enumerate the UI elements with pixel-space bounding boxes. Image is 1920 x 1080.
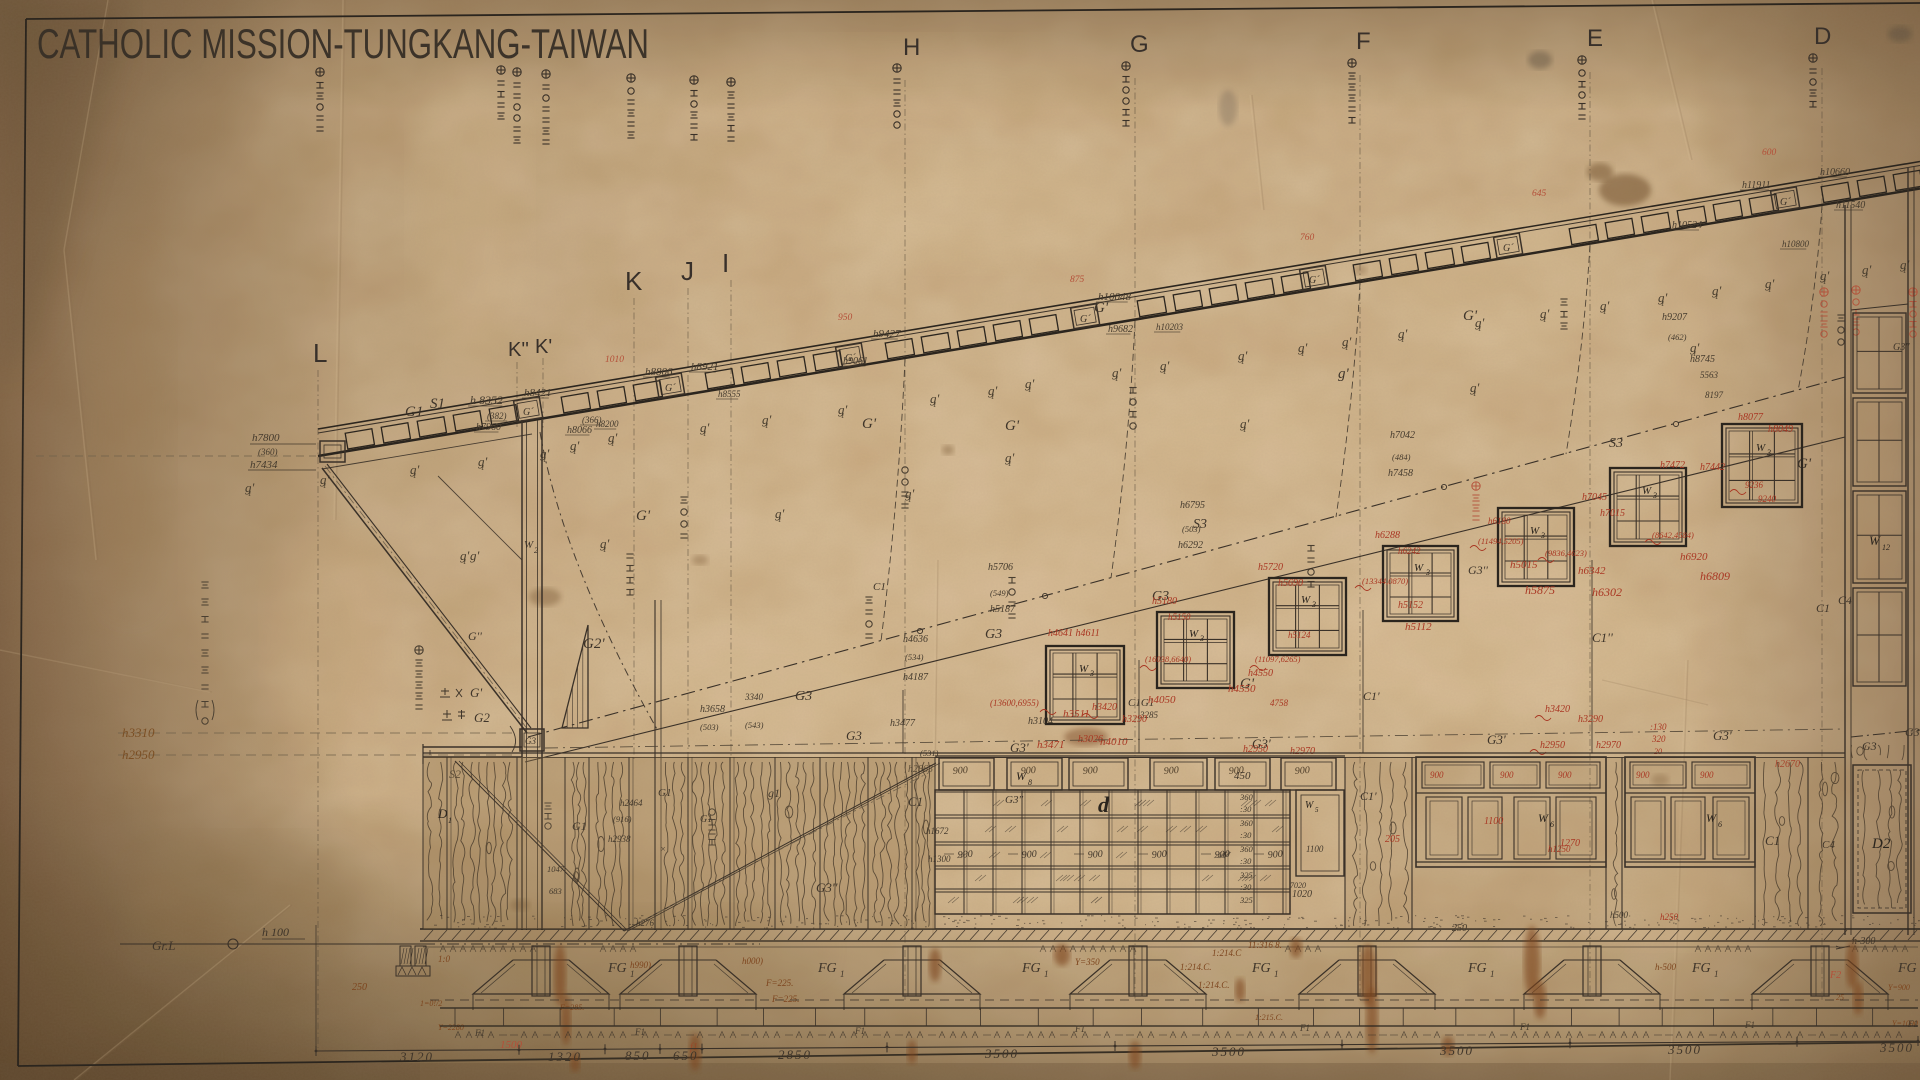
svg-text:3500: 3500 — [1879, 1040, 1914, 1055]
svg-text:1320: 1320 — [548, 1049, 582, 1064]
svg-text:325: 325 — [1239, 870, 1253, 880]
svg-text:K'': K'' — [508, 339, 529, 361]
svg-text:(543): (543) — [745, 720, 764, 730]
svg-text:F2: F2 — [1829, 970, 1841, 981]
svg-text:1: 1 — [1715, 293, 1719, 301]
svg-text:1: 1 — [1241, 358, 1245, 366]
svg-text:4758: 4758 — [1270, 698, 1289, 708]
svg-text:h5690: h5690 — [1278, 578, 1303, 589]
svg-text:K': K' — [535, 336, 552, 358]
svg-text:G3: G3 — [525, 736, 536, 746]
svg-text:FG: FG — [1021, 961, 1041, 976]
svg-text:F: F — [1356, 28, 1371, 55]
svg-text:1:214.C.: 1:214.C. — [1198, 980, 1230, 990]
svg-text:(8642,4584): (8642,4584) — [1652, 530, 1694, 540]
svg-text:G´: G´ — [523, 407, 534, 418]
svg-text:h3310: h3310 — [122, 725, 155, 740]
svg-text:900: 900 — [1163, 765, 1179, 777]
svg-text:900: 900 — [952, 765, 968, 777]
svg-text:FG: FG — [1691, 961, 1711, 976]
svg-text:h11911: h11911 — [1742, 180, 1771, 191]
svg-text:F1: F1 — [1907, 1019, 1918, 1029]
svg-text:5563: 5563 — [1700, 370, 1719, 380]
svg-text:h4187: h4187 — [903, 672, 929, 683]
svg-text:F1: F1 — [1519, 1022, 1530, 1032]
svg-text:h5152: h5152 — [1398, 600, 1423, 611]
svg-text:FG: FG — [1897, 961, 1917, 976]
svg-text:h7960: h7960 — [476, 422, 501, 433]
svg-text:h9207: h9207 — [1662, 312, 1688, 323]
svg-text:1: 1 — [448, 816, 452, 825]
svg-text:1: 1 — [908, 496, 912, 504]
svg-text:875: 875 — [1070, 275, 1085, 285]
svg-text:W: W — [1642, 485, 1652, 497]
svg-text:Y=2280: Y=2280 — [438, 1023, 464, 1032]
svg-text:J: J — [681, 256, 694, 286]
svg-text:(503): (503) — [1182, 524, 1201, 534]
svg-text:1: 1 — [1163, 368, 1167, 376]
svg-text:g': g' — [1338, 366, 1350, 382]
svg-text:h4010: h4010 — [1100, 736, 1128, 748]
svg-text:1: 1 — [1274, 969, 1279, 979]
svg-text:h-500: h-500 — [1655, 962, 1676, 972]
svg-text:C4: C4 — [1822, 839, 1835, 851]
svg-text:250: 250 — [1452, 923, 1467, 934]
svg-text:h10660: h10660 — [1820, 167, 1850, 178]
svg-text:G´: G´ — [1503, 243, 1514, 254]
svg-text:Y=350: Y=350 — [1075, 957, 1100, 967]
svg-text:3: 3 — [1311, 600, 1316, 609]
svg-text:900: 900 — [957, 849, 973, 861]
svg-text:H: H — [903, 34, 920, 61]
svg-text:h6242: h6242 — [1398, 546, 1421, 556]
svg-text:g': g' — [470, 548, 480, 563]
svg-text:1: 1 — [1473, 390, 1477, 398]
svg-text:C1': C1' — [1363, 689, 1380, 703]
svg-text:h1672: h1672 — [926, 826, 949, 836]
svg-text:h5112: h5112 — [1405, 621, 1432, 633]
svg-text:1: 1 — [1903, 267, 1907, 275]
svg-text:h2970: h2970 — [1596, 740, 1621, 751]
svg-text:G: G — [1130, 31, 1149, 58]
svg-text:h6288: h6288 — [1375, 530, 1400, 541]
svg-text:2850: 2850 — [778, 1047, 812, 1062]
svg-text:G3': G3' — [1713, 728, 1732, 743]
svg-text:W: W — [1189, 628, 1199, 640]
svg-text:8197: 8197 — [1705, 390, 1724, 400]
svg-text:h8806: h8806 — [645, 366, 673, 378]
svg-text:S3: S3 — [1609, 436, 1623, 451]
svg-text:h990): h990) — [630, 960, 651, 970]
svg-text:250: 250 — [352, 982, 367, 993]
svg-text:h10800: h10800 — [1782, 239, 1810, 249]
svg-text:h7442: h7442 — [1700, 462, 1725, 473]
svg-text:900: 900 — [1500, 770, 1514, 780]
svg-text:3: 3 — [1652, 491, 1657, 500]
svg-text:h3477: h3477 — [890, 718, 916, 729]
svg-text:W: W — [1530, 525, 1540, 537]
svg-text:F1: F1 — [1074, 1024, 1085, 1034]
svg-text:3500: 3500 — [1211, 1044, 1246, 1059]
svg-text:1: 1 — [840, 969, 845, 979]
svg-text:9240: 9240 — [1758, 494, 1777, 504]
svg-text:900: 900 — [1151, 849, 1167, 861]
svg-text:F=225.: F=225. — [771, 994, 799, 1004]
svg-text:S1: S1 — [430, 396, 445, 412]
svg-text:1010: 1010 — [605, 355, 624, 365]
svg-text:1:215.C.: 1:215.C. — [1255, 1013, 1283, 1022]
svg-text:h3658: h3658 — [700, 704, 725, 715]
svg-text:6: 6 — [1718, 820, 1722, 829]
svg-text:C1: C1 — [873, 581, 886, 593]
svg-text:W: W — [1016, 769, 1027, 783]
svg-text:6: 6 — [1550, 820, 1554, 829]
svg-text:1020: 1020 — [1292, 889, 1312, 900]
svg-text:1: 1 — [1008, 460, 1012, 468]
svg-text:3: 3 — [1540, 531, 1545, 540]
svg-text:1:0: 1:0 — [438, 954, 450, 964]
svg-text:h250: h250 — [1660, 912, 1679, 922]
svg-text:G': G' — [1094, 300, 1109, 316]
svg-text:1: 1 — [248, 490, 252, 498]
svg-text:h10524: h10524 — [1672, 220, 1702, 231]
svg-text:G´: G´ — [665, 383, 676, 394]
svg-text:CATHOLIC MISSION-TUNGKANG-TAIW: CATHOLIC MISSION-TUNGKANG-TAIWAN — [37, 20, 649, 67]
svg-text:450: 450 — [1234, 770, 1251, 782]
svg-text:645: 645 — [1532, 189, 1547, 199]
svg-text:G': G' — [1005, 418, 1020, 434]
svg-text:h5706: h5706 — [988, 562, 1013, 573]
svg-text:1: 1 — [413, 472, 417, 480]
svg-text:W: W — [1706, 811, 1717, 825]
svg-text:h6795: h6795 — [1180, 500, 1205, 511]
svg-text:h276: h276 — [636, 918, 655, 928]
svg-text:900: 900 — [1636, 770, 1650, 780]
svg-text:1: 1 — [933, 401, 937, 409]
svg-text:W: W — [1869, 533, 1881, 548]
svg-text:(13600,6955): (13600,6955) — [990, 698, 1039, 708]
svg-text:2: 2 — [534, 546, 538, 555]
svg-text:K: K — [625, 266, 643, 296]
svg-text:h500: h500 — [1610, 910, 1629, 920]
svg-text:Y=900: Y=900 — [1888, 983, 1910, 992]
svg-text:900: 900 — [1021, 849, 1037, 861]
svg-text:1: 1 — [1345, 344, 1349, 352]
svg-text:Gr.L: Gr.L — [152, 938, 176, 953]
svg-text:1: 1 — [991, 393, 995, 401]
svg-text:(11097,6265): (11097,6265) — [1255, 654, 1301, 664]
svg-text:3500: 3500 — [984, 1046, 1019, 1061]
svg-text:h8421: h8421 — [524, 387, 552, 399]
svg-text:1: 1 — [463, 558, 467, 566]
svg-text:h3511: h3511 — [1063, 708, 1090, 720]
svg-text:h 100: h 100 — [262, 925, 289, 939]
svg-text:C1: C1 — [908, 794, 923, 809]
svg-text:G': G' — [1797, 456, 1812, 472]
svg-text:h8921: h8921 — [691, 361, 719, 373]
svg-text:W: W — [1301, 594, 1311, 606]
svg-text:D: D — [437, 806, 448, 821]
svg-text:(916): (916) — [613, 814, 632, 824]
svg-text::30: :30 — [1240, 882, 1252, 892]
svg-text:(484): (484) — [1392, 452, 1411, 462]
svg-text:d: d — [1098, 792, 1110, 817]
svg-text:I: I — [722, 248, 729, 278]
svg-text:C4: C4 — [1838, 593, 1852, 607]
svg-text:(9836,4623): (9836,4623) — [1545, 548, 1587, 558]
svg-text:760: 760 — [1300, 233, 1315, 243]
svg-text:h5720: h5720 — [1258, 562, 1283, 573]
svg-text:900: 900 — [1087, 849, 1103, 861]
svg-text:G': G' — [862, 416, 877, 432]
svg-text:F1: F1 — [634, 1027, 645, 1037]
svg-text:G': G' — [1463, 308, 1478, 324]
svg-text:h5187: h5187 — [990, 604, 1016, 615]
svg-text:h7472: h7472 — [1660, 460, 1685, 471]
svg-text:W: W — [1538, 811, 1549, 825]
svg-text:9236: 9236 — [1745, 480, 1764, 490]
svg-text:20: 20 — [1654, 747, 1662, 756]
svg-text:600: 600 — [1762, 148, 1777, 158]
svg-text:1: 1 — [765, 422, 769, 430]
svg-text:G´: G´ — [1780, 197, 1791, 208]
svg-text:1: 1 — [1865, 272, 1869, 280]
svg-text:h2938: h2938 — [608, 834, 631, 844]
svg-text:3500: 3500 — [1439, 1043, 1474, 1058]
svg-text:3340: 3340 — [744, 692, 764, 702]
svg-text:900: 900 — [1700, 770, 1714, 780]
svg-text:D2: D2 — [1871, 836, 1891, 852]
svg-text:25: 25 — [1836, 993, 1844, 1002]
svg-text:1: 1 — [1714, 969, 1719, 979]
svg-text:G': G' — [470, 685, 482, 700]
svg-text:G3'': G3'' — [1893, 342, 1910, 353]
svg-text:(462): (462) — [1668, 332, 1687, 342]
svg-text:h5180: h5180 — [1152, 596, 1177, 607]
svg-text:1: 1 — [1301, 350, 1305, 358]
svg-text:h5150: h5150 — [1168, 612, 1191, 622]
svg-text:h2464: h2464 — [620, 798, 643, 808]
svg-text:1:214.C: 1:214.C — [1212, 948, 1242, 958]
svg-text:(549): (549) — [990, 588, 1009, 598]
svg-text:F1: F1 — [1744, 1020, 1755, 1030]
svg-text:h5124: h5124 — [1288, 630, 1311, 640]
svg-text:h9427: h9427 — [873, 328, 901, 340]
svg-text:11:316 8.: 11:316 8. — [1248, 940, 1282, 950]
svg-text:5: 5 — [1315, 806, 1319, 814]
svg-text:G1: G1 — [405, 404, 423, 420]
svg-text:G3'': G3'' — [816, 880, 838, 895]
svg-text:G2': G2' — [583, 636, 605, 652]
svg-text:1: 1 — [323, 482, 327, 490]
svg-text:325: 325 — [1239, 895, 1253, 905]
svg-text:850: 850 — [625, 1048, 651, 1063]
svg-text:FG: FG — [1251, 961, 1271, 976]
svg-text:1: 1 — [603, 546, 607, 554]
svg-text:1: 1 — [841, 412, 845, 420]
svg-text:h8066: h8066 — [567, 425, 592, 436]
svg-text:h1250: h1250 — [1548, 844, 1571, 854]
svg-text:3: 3 — [1199, 634, 1204, 643]
svg-text:G'': G'' — [468, 629, 482, 643]
svg-text:(503): (503) — [700, 722, 719, 732]
svg-text:1: 1 — [703, 430, 707, 438]
svg-text:h-300: h-300 — [1852, 936, 1875, 947]
svg-text:h 8352: h 8352 — [470, 393, 503, 407]
svg-text:W: W — [524, 539, 534, 551]
svg-text:E: E — [1587, 25, 1603, 52]
svg-text:G2: G2 — [474, 710, 490, 725]
svg-text:FG: FG — [817, 961, 837, 976]
svg-text:G3: G3 — [985, 627, 1002, 642]
svg-text:1100: 1100 — [1484, 816, 1503, 827]
svg-text:h3290: h3290 — [1122, 714, 1147, 725]
svg-text:1: 1 — [481, 464, 485, 472]
svg-text:1: 1 — [1823, 278, 1827, 286]
svg-text:900: 900 — [1267, 849, 1283, 861]
svg-text:900: 900 — [1430, 770, 1444, 780]
svg-text:(11494,5205): (11494,5205) — [1478, 536, 1524, 546]
svg-text:G3'': G3'' — [1468, 563, 1488, 577]
svg-text:1: 1 — [630, 969, 635, 979]
svg-text:h4641 h4611: h4641 h4611 — [1048, 628, 1100, 639]
svg-text:h4636: h4636 — [903, 634, 928, 645]
svg-text:W: W — [1079, 663, 1089, 675]
svg-text:900: 900 — [1294, 765, 1310, 777]
svg-text:h7045: h7045 — [1582, 492, 1607, 503]
svg-text:FG: FG — [1467, 961, 1487, 976]
svg-text:h6920: h6920 — [1680, 551, 1708, 563]
svg-text:3: 3 — [1766, 448, 1771, 457]
svg-text:h1300: h1300 — [928, 854, 951, 864]
svg-text:12: 12 — [1882, 543, 1890, 552]
svg-text:(534): (534) — [905, 652, 924, 662]
svg-text:h6292: h6292 — [1178, 540, 1203, 551]
svg-text:360: 360 — [1239, 844, 1254, 854]
svg-text:1: 1 — [611, 440, 615, 448]
svg-text:1: 1 — [1115, 375, 1119, 383]
svg-text::130: :130 — [1650, 722, 1667, 732]
svg-text:h7042: h7042 — [1390, 430, 1415, 441]
svg-text:h2950: h2950 — [122, 747, 155, 762]
svg-text:W: W — [1414, 562, 1424, 574]
svg-text:h8200: h8200 — [596, 419, 619, 429]
svg-text:h8555: h8555 — [718, 389, 741, 399]
svg-text:1047: 1047 — [547, 864, 565, 874]
svg-text:(16038,6640): (16038,6640) — [1145, 654, 1191, 664]
svg-text:1100: 1100 — [1306, 844, 1324, 854]
svg-text:D: D — [1814, 23, 1831, 50]
svg-text:1: 1 — [1543, 316, 1547, 324]
svg-text:h7015: h7015 — [1600, 508, 1625, 519]
svg-text:G3'': G3'' — [1005, 794, 1024, 806]
svg-text:1: 1 — [1478, 325, 1482, 333]
svg-text:h000): h000) — [742, 956, 763, 966]
svg-text:h5875: h5875 — [1525, 583, 1555, 597]
svg-text:C1': C1' — [1360, 789, 1377, 803]
svg-text:F1: F1 — [1299, 1023, 1310, 1033]
svg-text:360: 360 — [1239, 792, 1254, 802]
svg-text:G3: G3 — [795, 689, 812, 704]
svg-text:8: 8 — [1028, 778, 1032, 787]
svg-text:h6180: h6180 — [1488, 516, 1511, 526]
svg-text:360: 360 — [1239, 818, 1254, 828]
svg-text:h10203: h10203 — [1156, 322, 1184, 332]
svg-text:7020: 7020 — [1290, 881, 1306, 890]
svg-text:h7800: h7800 — [252, 432, 280, 444]
svg-text:F=225.: F=225. — [765, 978, 793, 988]
svg-text:h2950: h2950 — [1540, 740, 1565, 751]
svg-text:(360): (360) — [258, 447, 278, 457]
svg-text:683: 683 — [549, 886, 562, 896]
svg-text:h7458: h7458 — [1388, 468, 1413, 479]
svg-text:650: 650 — [673, 1048, 699, 1063]
svg-text:3120: 3120 — [399, 1049, 434, 1064]
svg-text:FG: FG — [607, 961, 627, 976]
svg-text:h3420: h3420 — [1092, 702, 1117, 713]
svg-text:1: 1 — [1028, 386, 1032, 394]
svg-text:G3: G3 — [846, 728, 862, 743]
svg-text:G3': G3' — [1487, 732, 1506, 747]
svg-text:1: 1 — [1243, 426, 1247, 434]
svg-text:h6342: h6342 — [1578, 565, 1606, 577]
svg-text:G1: G1 — [658, 787, 671, 799]
svg-text::30: :30 — [1240, 830, 1252, 840]
svg-text:C1: C1 — [1765, 833, 1780, 848]
svg-text:h8077: h8077 — [1738, 412, 1764, 423]
svg-text::30: :30 — [1240, 856, 1252, 866]
svg-text:F1: F1 — [854, 1026, 865, 1036]
svg-text:G1: G1 — [572, 819, 587, 833]
svg-text:1: 1 — [1768, 286, 1772, 294]
svg-text:G': G' — [636, 508, 651, 524]
svg-text:1: 1 — [1661, 300, 1665, 308]
svg-text:1: 1 — [573, 448, 577, 456]
svg-text:G3': G3' — [1252, 736, 1271, 751]
svg-text:h9682: h9682 — [1108, 324, 1133, 335]
svg-text:C1'': C1'' — [1592, 630, 1613, 645]
svg-text:h9061: h9061 — [843, 356, 868, 367]
svg-text:h4050: h4050 — [1148, 694, 1176, 706]
svg-text:950: 950 — [838, 313, 853, 323]
svg-text:h8745: h8745 — [1690, 354, 1715, 365]
svg-text:(13344,0870): (13344,0870) — [1362, 576, 1408, 586]
svg-text:G3: G3 — [1905, 725, 1920, 739]
svg-text:1:214.C.: 1:214.C. — [1180, 962, 1212, 972]
svg-text:h8049: h8049 — [1768, 424, 1793, 435]
svg-text:h6809: h6809 — [1700, 569, 1730, 583]
svg-text:1: 1 — [1044, 969, 1049, 979]
svg-text:h6302: h6302 — [1592, 585, 1622, 599]
svg-text:3500: 3500 — [1667, 1042, 1702, 1057]
svg-text:900: 900 — [1082, 765, 1098, 777]
svg-text:C1: C1 — [1816, 601, 1830, 615]
svg-text:900: 900 — [1558, 770, 1572, 780]
svg-text:1: 1 — [1401, 336, 1405, 344]
svg-text:1: 1 — [778, 516, 782, 524]
svg-text:L: L — [313, 338, 327, 368]
svg-text:3: 3 — [1089, 669, 1094, 678]
svg-text:320: 320 — [1651, 734, 1666, 744]
svg-text:3: 3 — [1425, 568, 1430, 577]
svg-text:G´: G´ — [1080, 314, 1091, 325]
svg-text:h3104: h3104 — [1028, 716, 1053, 727]
svg-text:h5015: h5015 — [1510, 559, 1538, 571]
svg-text:(382): (382) — [487, 411, 507, 421]
svg-text:G´: G´ — [1309, 275, 1320, 286]
svg-text::30: :30 — [1240, 804, 1252, 814]
svg-text:900: 900 — [1214, 849, 1230, 861]
